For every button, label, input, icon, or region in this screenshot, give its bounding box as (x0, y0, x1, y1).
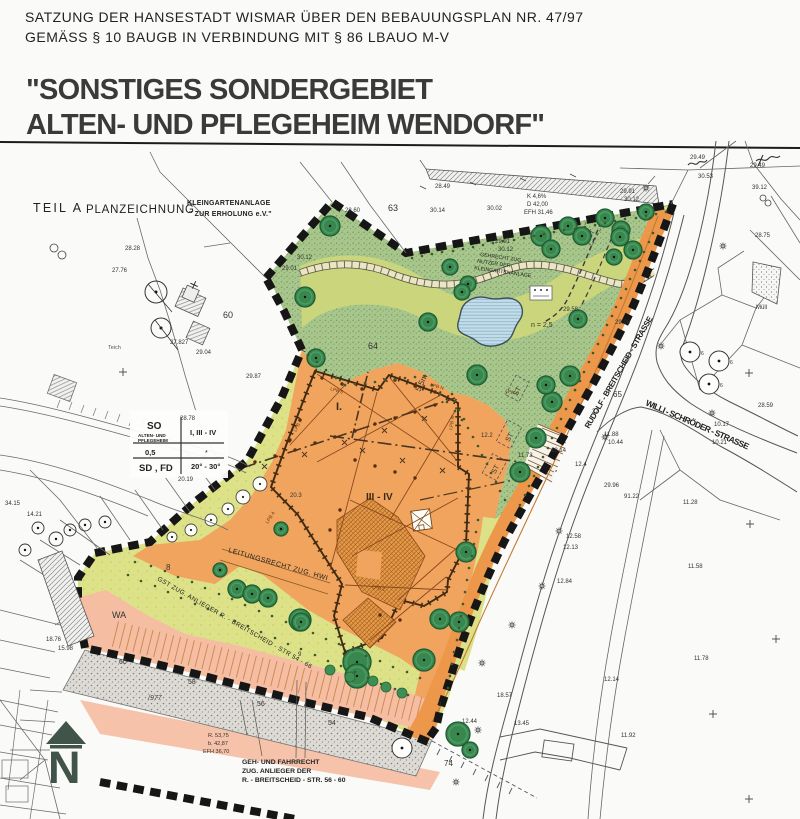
svg-text:R. 53,75: R. 53,75 (208, 733, 229, 739)
svg-text:12.13: 12.13 (563, 545, 579, 551)
svg-text:GEMÄSS § 10 BAUGB IN VERBINDUN: GEMÄSS § 10 BAUGB IN VERBINDUNG MIT § 86… (25, 29, 450, 45)
svg-text:I.: I. (336, 401, 342, 413)
svg-text:30.12: 30.12 (624, 197, 640, 203)
svg-text:28.78: 28.78 (180, 416, 196, 422)
svg-text:28.28: 28.28 (125, 246, 141, 252)
svg-text:29.91: 29.91 (620, 189, 636, 195)
svg-text:29.01: 29.01 (282, 266, 298, 272)
svg-text:39.12: 39.12 (752, 185, 768, 191)
svg-text:SO: SO (147, 421, 162, 432)
svg-text:12.84: 12.84 (557, 579, 573, 585)
svg-text:56: 56 (257, 701, 265, 708)
svg-text:29.91: 29.91 (495, 239, 511, 245)
svg-text:29.49: 29.49 (750, 163, 766, 169)
svg-text:11.92: 11.92 (621, 733, 636, 739)
svg-text:29.96: 29.96 (604, 483, 620, 489)
svg-text:11.58: 11.58 (688, 564, 703, 570)
svg-text:28.59: 28.59 (758, 403, 774, 409)
svg-text:SATZUNG DER HANSESTADT WISMAR: SATZUNG DER HANSESTADT WISMAR ÜBER DEN B… (25, 8, 583, 25)
svg-text:20.3: 20.3 (290, 493, 302, 499)
svg-text:0,5: 0,5 (145, 448, 155, 457)
svg-text:12.44: 12.44 (462, 719, 478, 725)
svg-text:30.02: 30.02 (487, 206, 503, 212)
svg-text:14.21: 14.21 (27, 512, 43, 518)
svg-text:Teich: Teich (108, 345, 121, 351)
svg-text:34.15: 34.15 (5, 501, 21, 507)
svg-text:18.57: 18.57 (497, 693, 513, 699)
svg-text:12.4: 12.4 (575, 462, 587, 468)
svg-text:N: N (48, 742, 81, 793)
svg-text:27: 27 (592, 409, 599, 415)
svg-text:74: 74 (444, 759, 453, 768)
svg-text:29.87: 29.87 (246, 374, 262, 380)
svg-text:18.14: 18.14 (551, 448, 567, 454)
svg-text:6: 6 (701, 351, 704, 357)
svg-text:65: 65 (613, 390, 622, 399)
svg-text:TEIL A: TEIL A (33, 201, 83, 215)
svg-text:91.22: 91.22 (624, 494, 640, 500)
svg-text:b. 42,87: b. 42,87 (208, 741, 228, 747)
svg-text:"SONSTIGES SONDERGEBIET: "SONSTIGES SONDERGEBIET (26, 74, 433, 106)
svg-text:29.58: 29.58 (563, 307, 579, 313)
svg-text:27.827: 27.827 (170, 340, 189, 346)
svg-text:6: 6 (720, 383, 723, 389)
svg-text:6: 6 (730, 360, 733, 366)
svg-text:8: 8 (166, 563, 171, 572)
svg-text:EFH 31,46: EFH 31,46 (524, 210, 553, 216)
svg-text:20° - 30°: 20° - 30° (191, 462, 220, 471)
svg-text:15.98: 15.98 (58, 646, 74, 652)
svg-text:EFH 36,70: EFH 36,70 (203, 749, 229, 755)
svg-text:63: 63 (388, 203, 398, 213)
svg-text:SD , FD: SD , FD (139, 463, 173, 474)
svg-text:ALTEN- UND PFLEGEHEIM WENDORF": ALTEN- UND PFLEGEHEIM WENDORF" (26, 109, 545, 141)
svg-text:30.12: 30.12 (297, 255, 313, 261)
svg-text:PFLEGEHEIM: PFLEGEHEIM (138, 438, 168, 443)
svg-text:11.88: 11.88 (604, 432, 619, 438)
svg-text:GEH- UND FAHRRECHT: GEH- UND FAHRRECHT (242, 759, 320, 766)
svg-text:28.60: 28.60 (345, 208, 361, 214)
svg-text:12.14: 12.14 (604, 677, 620, 683)
svg-text:12.2: 12.2 (481, 433, 493, 439)
svg-text:20.19: 20.19 (178, 477, 194, 483)
svg-text:60: 60 (223, 310, 233, 320)
svg-text:11.73: 11.73 (518, 453, 533, 459)
svg-text:10.17: 10.17 (714, 422, 730, 428)
svg-text:11.28: 11.28 (683, 500, 698, 506)
svg-text:29.49: 29.49 (690, 155, 706, 161)
svg-text:KLEINGARTENANLAGE: KLEINGARTENANLAGE (187, 200, 271, 207)
svg-text:58: 58 (188, 679, 196, 686)
svg-text:29.98: 29.98 (615, 320, 631, 326)
svg-text:30.12: 30.12 (498, 247, 514, 253)
svg-text:11.78: 11.78 (694, 656, 709, 662)
svg-text:PLANZEICHNUNG: PLANZEICHNUNG (86, 204, 195, 216)
svg-text:10.44: 10.44 (608, 440, 624, 446)
svg-text:27.76: 27.76 (112, 268, 128, 274)
svg-text:60: 60 (119, 659, 127, 666)
svg-text:D 42,00: D 42,00 (527, 202, 549, 208)
svg-text:III - IV: III - IV (366, 492, 393, 503)
svg-text:29.04: 29.04 (196, 350, 212, 356)
svg-text:28.49: 28.49 (435, 184, 451, 190)
svg-text:13.45: 13.45 (514, 721, 530, 727)
svg-text:" ZUR ERHOLUNG e.V.": " ZUR ERHOLUNG e.V." (189, 211, 272, 218)
svg-text:/977: /977 (147, 695, 163, 702)
svg-text:I, III - IV: I, III - IV (190, 428, 216, 437)
svg-text:64: 64 (368, 341, 378, 351)
svg-text:10.21: 10.21 (712, 440, 728, 446)
svg-text:18.76: 18.76 (46, 637, 62, 643)
svg-text:30.53: 30.53 (698, 174, 714, 180)
svg-text:54: 54 (328, 720, 336, 727)
svg-text:Müll: Müll (756, 305, 767, 311)
svg-text:ZUG. ANLIEGER DER: ZUG. ANLIEGER DER (242, 768, 311, 775)
svg-text:n = 2,5: n = 2,5 (531, 322, 553, 329)
svg-text:30.14: 30.14 (430, 208, 446, 214)
svg-text:*: * (205, 450, 208, 457)
svg-text:K 4,6%: K 4,6% (527, 194, 547, 200)
svg-text:R. - BREITSCHEID - STR. 56 - 6: R. - BREITSCHEID - STR. 56 - 60 (242, 777, 346, 784)
svg-text:12.58: 12.58 (566, 534, 582, 540)
svg-text:28.75: 28.75 (755, 233, 771, 239)
svg-text:WA: WA (112, 610, 126, 620)
